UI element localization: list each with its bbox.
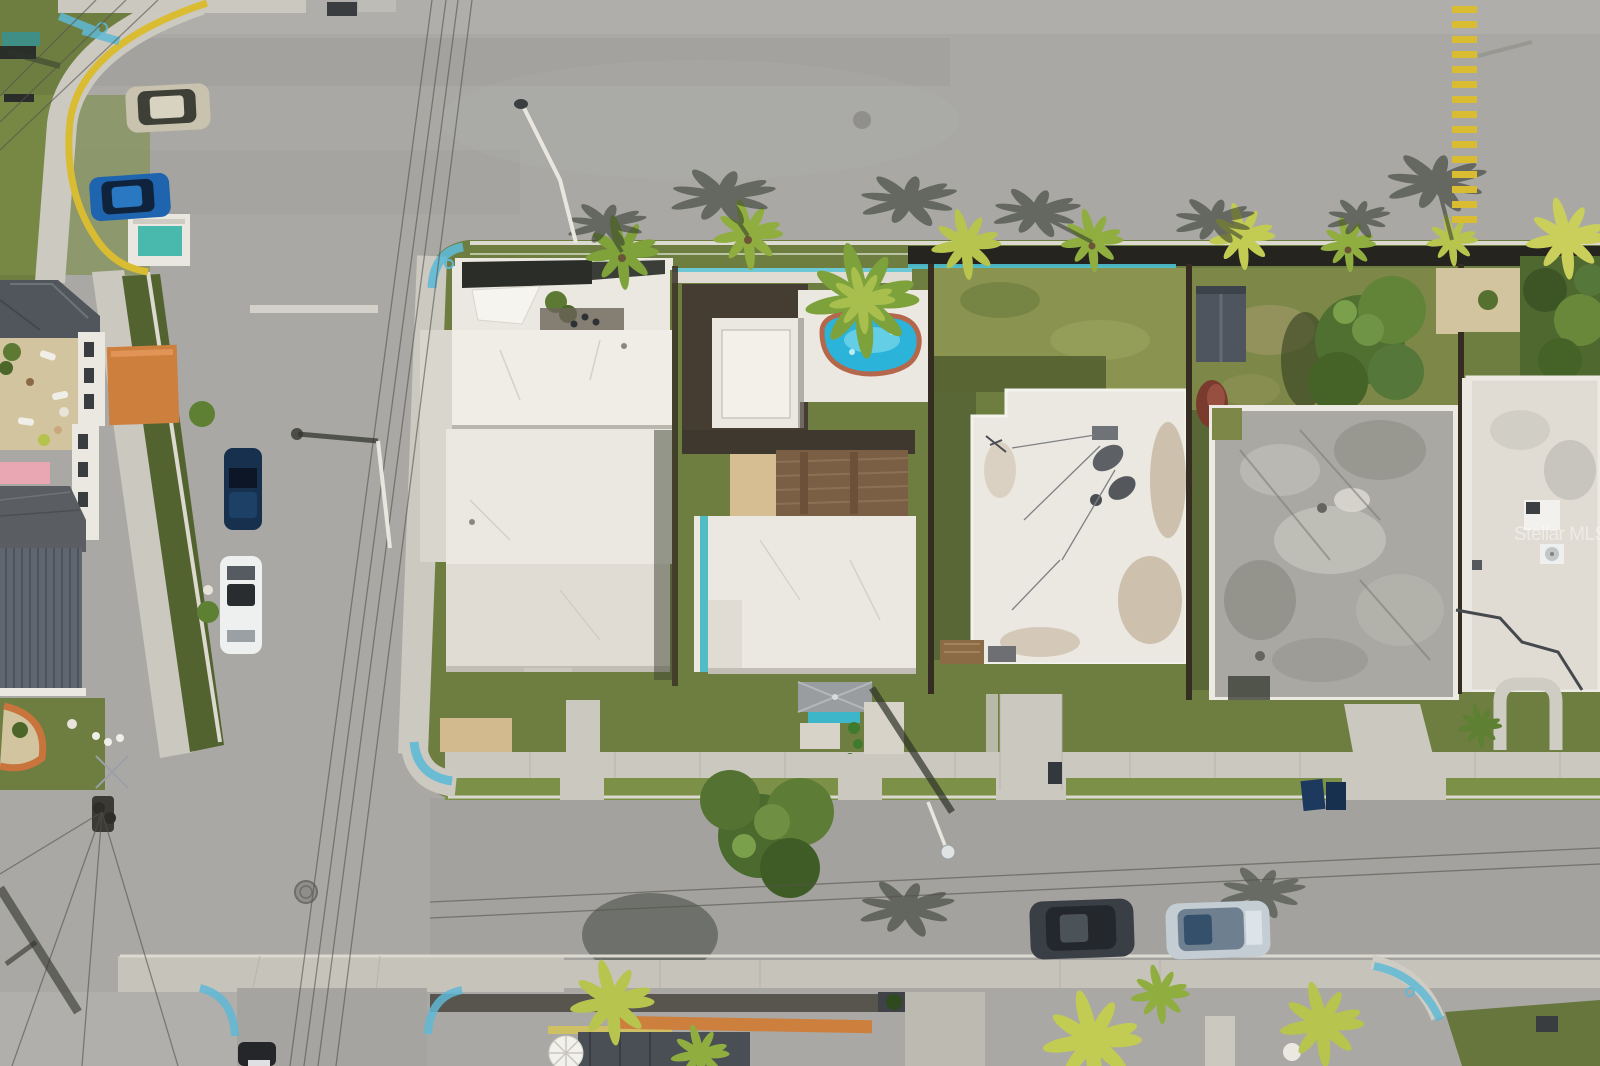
west-house-ribbed-roof bbox=[0, 548, 86, 696]
house-4 bbox=[1192, 264, 1464, 811]
property-wall bbox=[430, 994, 910, 1012]
roof bbox=[1212, 408, 1456, 700]
mls-watermark: Stellar MLS bbox=[1514, 524, 1600, 545]
car-silver bbox=[1165, 900, 1271, 960]
fence bbox=[1186, 264, 1192, 700]
car-navy-parked bbox=[224, 448, 262, 530]
car-blue bbox=[89, 172, 172, 221]
house-3 bbox=[934, 264, 1212, 790]
teal-porch bbox=[808, 712, 860, 723]
storm-drain bbox=[327, 2, 357, 16]
patio-table bbox=[1283, 1043, 1301, 1061]
car-side-street bbox=[238, 1042, 276, 1066]
manhole-cover bbox=[853, 111, 871, 129]
patio-umbrella bbox=[549, 1036, 583, 1066]
tile-terrace bbox=[730, 454, 776, 516]
stop-line bbox=[250, 305, 378, 313]
pink-awning bbox=[0, 462, 50, 484]
yellow-hatch-stripes bbox=[1452, 6, 1477, 223]
aerial-photo: Stellar MLS bbox=[0, 0, 1600, 1066]
kiosk bbox=[2, 32, 40, 46]
shrub bbox=[189, 401, 215, 427]
entry-shadow bbox=[1228, 676, 1270, 704]
fence bbox=[672, 266, 678, 686]
west-house-tile-roof bbox=[0, 486, 86, 552]
entry-canopy bbox=[798, 682, 872, 712]
patio-pad bbox=[440, 718, 512, 752]
house-1 bbox=[420, 260, 678, 778]
walkway bbox=[844, 754, 878, 780]
shrub bbox=[197, 601, 219, 623]
shed bbox=[1196, 286, 1246, 362]
car-dark-suv bbox=[1029, 898, 1135, 960]
car-beige bbox=[125, 83, 211, 133]
trash-bin bbox=[1326, 782, 1346, 810]
trash-bin bbox=[1048, 762, 1062, 784]
gazebo bbox=[712, 318, 804, 428]
patio-sand bbox=[0, 338, 78, 450]
walkway bbox=[566, 700, 600, 778]
wood-deck bbox=[776, 450, 908, 516]
house-5 bbox=[1452, 256, 1600, 752]
car-white-parked bbox=[220, 556, 262, 654]
fence bbox=[928, 264, 934, 694]
pergola-shade bbox=[462, 260, 592, 288]
trash-bin bbox=[1300, 779, 1325, 811]
canopy-stand bbox=[128, 214, 190, 266]
